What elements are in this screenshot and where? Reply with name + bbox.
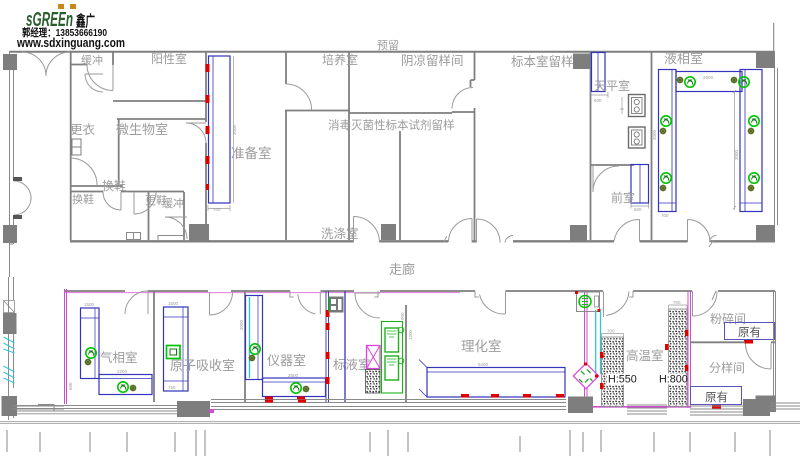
svg-text:1500: 1500: [84, 302, 95, 307]
svg-text:走廊: 走廊: [389, 262, 415, 277]
svg-text:前室: 前室: [611, 190, 635, 205]
svg-text:缓冲: 缓冲: [162, 196, 184, 210]
svg-text:分样间: 分样间: [709, 360, 745, 375]
svg-text:2600: 2600: [703, 75, 714, 80]
svg-text:3000: 3000: [734, 149, 739, 160]
svg-text:3000: 3000: [239, 319, 244, 330]
svg-text:理化室: 理化室: [461, 338, 502, 354]
svg-text:www.sdxinguang.com: www.sdxinguang.com: [16, 35, 125, 50]
svg-text:准备室: 准备室: [231, 145, 272, 161]
svg-text:3000: 3000: [232, 124, 237, 135]
svg-text:3000: 3000: [652, 129, 657, 140]
svg-text:仪器室: 仪器室: [267, 353, 306, 368]
svg-text:更衣: 更衣: [70, 122, 96, 137]
svg-text:阴凉留样间: 阴凉留样间: [401, 53, 464, 68]
svg-text:5400: 5400: [478, 362, 489, 367]
svg-text:700: 700: [673, 300, 681, 305]
svg-text:750: 750: [168, 385, 176, 390]
svg-text:培养室: 培养室: [322, 52, 358, 67]
svg-text:1500: 1500: [168, 301, 179, 306]
svg-text:H:800: H:800: [659, 374, 688, 386]
svg-text:气相室: 气相室: [100, 350, 138, 365]
svg-text:换鞋: 换鞋: [72, 192, 94, 206]
svg-text:700: 700: [213, 207, 221, 212]
svg-text:600: 600: [68, 382, 73, 390]
svg-text:原子吸收室: 原子吸收室: [170, 358, 235, 373]
svg-text:消毒灭菌性标本试剂留样: 消毒灭菌性标本试剂留样: [328, 118, 455, 132]
svg-text:换鞋: 换鞋: [102, 178, 126, 193]
svg-text:天平室: 天平室: [594, 78, 630, 93]
svg-text:洗涤室: 洗涤室: [321, 226, 359, 241]
svg-text:2500: 2500: [288, 373, 299, 378]
svg-text:标本室留样: 标本室留样: [511, 54, 574, 69]
svg-text:粉碎间: 粉碎间: [710, 311, 746, 326]
svg-text:2200: 2200: [117, 369, 128, 374]
svg-text:700: 700: [661, 213, 669, 218]
svg-text:缓冲: 缓冲: [81, 53, 103, 67]
svg-text:原有: 原有: [738, 325, 761, 339]
svg-text:阳性室: 阳性室: [151, 51, 187, 66]
svg-text:1200: 1200: [408, 329, 413, 340]
svg-text:微生物室: 微生物室: [116, 122, 168, 137]
svg-text:600: 600: [634, 207, 642, 212]
svg-text:600: 600: [594, 98, 602, 103]
svg-text:700: 700: [607, 329, 615, 334]
svg-text:液相室: 液相室: [664, 51, 703, 66]
svg-text:原有: 原有: [705, 390, 728, 404]
svg-text:900: 900: [400, 312, 405, 320]
svg-text:H:550: H:550: [608, 374, 637, 386]
svg-text:标液室: 标液室: [333, 357, 371, 372]
svg-text:高温室: 高温室: [626, 348, 664, 363]
svg-text:预留: 预留: [377, 39, 399, 52]
